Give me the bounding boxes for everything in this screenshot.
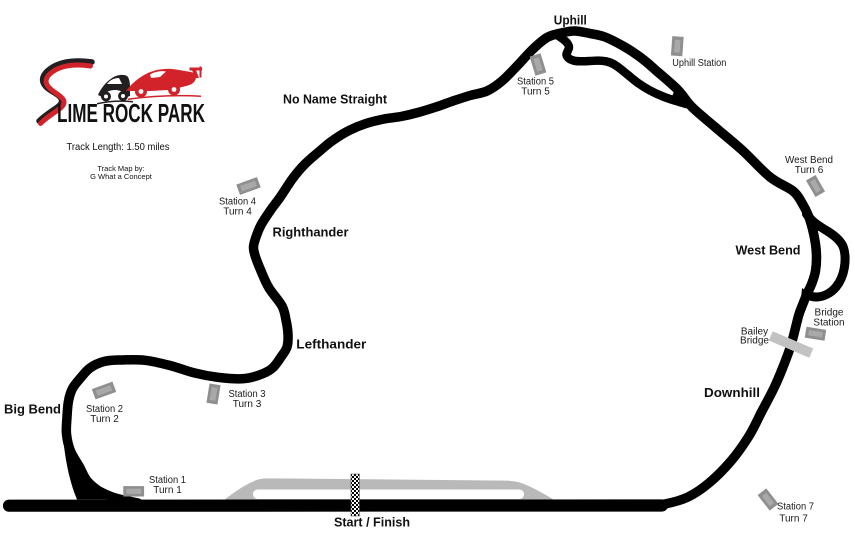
svg-text:Turn 6: Turn 6: [795, 165, 824, 176]
svg-text:Turn 1: Turn 1: [153, 485, 182, 496]
svg-text:Station: Station: [813, 318, 844, 329]
svg-text:No Name Straight: No Name Straight: [283, 91, 388, 106]
svg-text:Turn 7: Turn 7: [779, 514, 808, 525]
svg-text:Turn 4: Turn 4: [223, 207, 252, 218]
svg-text:Uphill: Uphill: [554, 12, 587, 27]
svg-text:LIME ROCK PARK: LIME ROCK PARK: [57, 98, 205, 128]
svg-text:West Bend: West Bend: [736, 243, 801, 258]
svg-text:Turn 5: Turn 5: [521, 87, 550, 98]
svg-text:Turn 2: Turn 2: [90, 414, 119, 425]
svg-text:Track Length: 1.50 miles: Track Length: 1.50 miles: [67, 141, 170, 153]
svg-text:Lefthander: Lefthander: [296, 337, 366, 352]
svg-text:Station 7: Station 7: [777, 502, 814, 513]
svg-text:Bridge: Bridge: [740, 336, 769, 347]
svg-text:G What a Concept: G What a Concept: [90, 172, 153, 181]
svg-text:Righthander: Righthander: [273, 224, 349, 239]
svg-text:Start / Finish: Start / Finish: [334, 515, 410, 530]
svg-text:Downhill: Downhill: [704, 385, 760, 400]
svg-text:Big Bend: Big Bend: [4, 402, 61, 417]
svg-text:Turn 3: Turn 3: [233, 399, 262, 410]
svg-text:Uphill Station: Uphill Station: [672, 58, 726, 69]
